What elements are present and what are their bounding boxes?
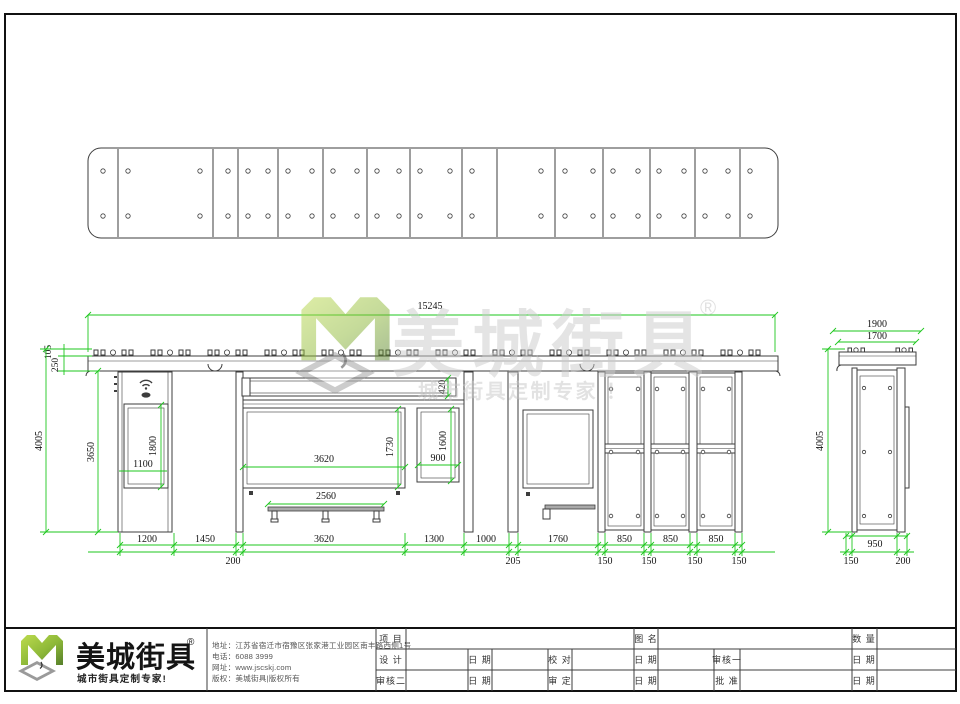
- screw-icon: [310, 214, 314, 218]
- hinge-mark: [114, 390, 117, 392]
- roof-drip-left: [86, 371, 90, 376]
- screw-icon: [636, 450, 640, 454]
- roof-clamp-bolt: [167, 350, 172, 355]
- roof-clamp: [243, 350, 247, 355]
- screw-icon: [198, 214, 202, 218]
- dim-roof-trim: 105: [44, 345, 54, 360]
- drawing-sheet: 15245 105 250 4005 3650 1800 1100 420 36…: [0, 0, 960, 704]
- info-board: [243, 408, 405, 488]
- screw-icon: [655, 450, 659, 454]
- dim-total-height: 4005: [34, 431, 45, 451]
- field-date: 日 期: [634, 676, 658, 686]
- screw-icon: [682, 169, 686, 173]
- watermark-brand: 美城街具: [392, 306, 712, 386]
- dim-right-screen-h: 1600: [438, 431, 449, 451]
- roof-clamp: [158, 350, 162, 355]
- roof-clamp: [151, 350, 155, 355]
- roof-clamp: [129, 350, 133, 355]
- company-phone: 电话：6088 3999: [212, 651, 273, 661]
- screw-icon: [126, 169, 130, 173]
- roof-clamp: [186, 350, 190, 355]
- screw-icon: [101, 169, 105, 173]
- screw-icon: [470, 169, 474, 173]
- plan-view: [88, 148, 778, 238]
- socket-mark: [249, 491, 253, 495]
- dim-bay: 1000: [476, 534, 496, 545]
- footer-logo-block: 美城街具 ® 城市街具定制专家!: [18, 635, 196, 685]
- screw-icon: [681, 387, 685, 391]
- screw-icon: [862, 514, 865, 517]
- dim-post: 150: [642, 556, 657, 567]
- screw-icon: [448, 169, 452, 173]
- screw-icon: [862, 386, 865, 389]
- company-reg: ®: [187, 637, 195, 648]
- screw-icon: [226, 169, 230, 173]
- dim-bay: 3620: [314, 534, 334, 545]
- field-date: 日 期: [852, 676, 876, 686]
- field-date: 日 期: [468, 655, 492, 665]
- hinge-mark: [114, 383, 117, 385]
- roof-clamp: [350, 350, 354, 355]
- roof-clamp: [265, 350, 269, 355]
- bench-foot: [271, 519, 278, 522]
- field-drawing-name: 图 名: [634, 633, 658, 644]
- screw-icon: [397, 214, 401, 218]
- roof-clamp: [721, 350, 725, 355]
- company-tagline: 城市街具定制专家!: [77, 673, 167, 685]
- screw-icon: [701, 450, 705, 454]
- screw-icon: [246, 169, 250, 173]
- screw-icon: [266, 169, 270, 173]
- screw-icon: [397, 169, 401, 173]
- dim-post: 205: [506, 556, 521, 567]
- screw-icon: [375, 169, 379, 173]
- screw-icon: [266, 214, 270, 218]
- screw-icon: [682, 214, 686, 218]
- screw-icon: [726, 214, 730, 218]
- screw-icon: [101, 214, 105, 218]
- screw-icon: [701, 387, 705, 391]
- socket-mark: [396, 491, 400, 495]
- screw-icon: [681, 450, 685, 454]
- roof-clamp: [756, 350, 760, 355]
- side-handle: [905, 407, 909, 488]
- field-design: 设 计: [379, 654, 403, 665]
- screw-icon: [609, 450, 613, 454]
- dim-side-off-l: 150: [844, 556, 859, 567]
- screw-icon: [888, 450, 891, 453]
- screw-icon: [655, 387, 659, 391]
- field-approve: 审 定: [548, 675, 572, 686]
- roof-clamp: [272, 350, 276, 355]
- roof-clamp: [122, 350, 126, 355]
- bench-foot: [373, 519, 380, 522]
- screw-icon: [657, 214, 661, 218]
- dim-bay: 850: [663, 534, 678, 545]
- field-date: 日 期: [634, 655, 658, 665]
- screw-icon: [355, 169, 359, 173]
- field-ratify: 批 准: [715, 675, 739, 686]
- roof-clamp: [101, 350, 105, 355]
- post: [689, 372, 697, 532]
- dim-side-h: 4005: [815, 431, 826, 451]
- roof-clamp: [848, 348, 852, 352]
- dim-bay: 1450: [195, 534, 215, 545]
- side-post: [852, 368, 857, 532]
- company-copyright: 版权：美城街具|版权所有: [212, 673, 300, 683]
- screw-icon: [563, 169, 567, 173]
- screw-icon: [611, 214, 615, 218]
- screw-icon: [286, 169, 290, 173]
- roof-clamp: [208, 350, 212, 355]
- field-review2: 审核二: [376, 675, 406, 686]
- watermark-tagline: 城市街具定制专家 ！: [418, 379, 629, 403]
- roof-clamp-bolt: [737, 350, 742, 355]
- roof-clamp: [322, 350, 326, 355]
- screw-icon: [727, 450, 731, 454]
- roof-clamp: [896, 348, 900, 352]
- dim-post: 150: [732, 556, 747, 567]
- company-website: 网址：www.jscskj.com: [212, 662, 291, 672]
- service-rail: [545, 505, 595, 509]
- screw-icon: [862, 450, 865, 453]
- dim-post: 150: [688, 556, 703, 567]
- field-proofread: 校 对: [548, 654, 572, 665]
- screw-icon: [888, 386, 891, 389]
- dim-side-canopy-w: 1700: [867, 331, 887, 342]
- screw-icon: [888, 514, 891, 517]
- dim-bay: 850: [709, 534, 724, 545]
- screw-icon: [355, 214, 359, 218]
- roof-clamp: [728, 350, 732, 355]
- roof-clamp: [94, 350, 98, 355]
- side-drip: [837, 365, 841, 371]
- side-roof: [839, 352, 916, 365]
- side-post: [897, 368, 905, 532]
- screw-icon: [226, 214, 230, 218]
- roof-clamp-bolt: [281, 350, 286, 355]
- screw-icon: [418, 169, 422, 173]
- field-date: 日 期: [468, 676, 492, 686]
- screw-icon: [636, 169, 640, 173]
- dim-bay: 850: [617, 534, 632, 545]
- socket-mark: [526, 492, 530, 496]
- roof-clamp: [236, 350, 240, 355]
- dim-fascia: 250: [51, 358, 61, 373]
- screw-icon: [331, 169, 335, 173]
- field-review1: 审核一: [712, 654, 742, 665]
- screw-icon: [418, 214, 422, 218]
- dim-body-height: 3650: [86, 442, 97, 462]
- screw-icon: [591, 214, 595, 218]
- screw-icon: [310, 169, 314, 173]
- roof-clamp: [179, 350, 183, 355]
- screw-icon: [591, 169, 595, 173]
- lightbox-cap: [242, 378, 250, 396]
- screw-icon: [286, 214, 290, 218]
- dim-side-off-r: 200: [896, 556, 911, 567]
- screw-icon: [636, 387, 640, 391]
- screw-icon: [539, 169, 543, 173]
- screw-icon: [657, 169, 661, 173]
- screw-icon: [703, 169, 707, 173]
- roof-clamp: [861, 348, 865, 352]
- screw-icon: [748, 214, 752, 218]
- post: [735, 372, 742, 532]
- roof-clamp: [357, 350, 361, 355]
- side-panel: [857, 370, 897, 530]
- dim-bay: 1760: [548, 534, 568, 545]
- screw-icon: [539, 214, 543, 218]
- screw-icon: [470, 214, 474, 218]
- roof-clamp: [215, 350, 219, 355]
- screw-icon: [748, 169, 752, 173]
- screw-icon: [126, 214, 130, 218]
- dim-bench-w: 2560: [316, 491, 336, 502]
- screw-icon: [636, 514, 640, 518]
- screw-icon: [448, 214, 452, 218]
- dim-bay: 1300: [424, 534, 444, 545]
- watermark-reg: ®: [700, 295, 716, 320]
- screw-icon: [726, 169, 730, 173]
- roof-clamp-bolt: [110, 350, 115, 355]
- screw-icon: [727, 387, 731, 391]
- screw-icon: [655, 514, 659, 518]
- screw-icon: [198, 169, 202, 173]
- roof-plan-outline: [88, 148, 778, 238]
- company-address: 地址：江苏省宿迁市宿豫区张家港工业园区南丰路西侧1号: [212, 640, 411, 650]
- speaker-icon: [142, 392, 151, 397]
- screw-icon: [609, 514, 613, 518]
- screw-icon: [681, 514, 685, 518]
- side-elevation: 1900 1700 4005 950 150 200: [815, 319, 924, 567]
- dim-side-roof-w: 1900: [867, 319, 887, 330]
- field-quantity: 数 量: [852, 633, 876, 644]
- dim-post: 150: [598, 556, 613, 567]
- screw-icon: [727, 514, 731, 518]
- dim-side-base: 950: [868, 539, 883, 550]
- dim-left-screen-h: 1800: [148, 436, 159, 456]
- company-brand: 美城街具: [76, 640, 196, 674]
- bench-seat: [268, 507, 384, 511]
- service-panel: [523, 410, 593, 488]
- screw-icon: [375, 214, 379, 218]
- roof-drip-right: [776, 371, 780, 376]
- screw-icon: [701, 514, 705, 518]
- screw-icon: [331, 214, 335, 218]
- dim-board-w: 3620: [314, 454, 334, 465]
- dim-bay: 1200: [137, 534, 157, 545]
- service-bin: [543, 509, 550, 519]
- dim-board-h: 1730: [385, 437, 396, 457]
- roof-clamp-bolt: [224, 350, 229, 355]
- field-date: 日 期: [852, 655, 876, 665]
- dim-right-screen-w: 900: [431, 453, 446, 464]
- company-logo: [18, 635, 63, 681]
- hinge-mark: [114, 376, 117, 378]
- roof-clamp: [909, 348, 913, 352]
- post: [644, 372, 651, 532]
- cad-canvas: 15245 105 250 4005 3650 1800 1100 420 36…: [0, 0, 960, 704]
- roof-clamp: [293, 350, 297, 355]
- bench-foot: [322, 519, 329, 522]
- screw-icon: [636, 214, 640, 218]
- screw-icon: [246, 214, 250, 218]
- roof-clamp: [749, 350, 753, 355]
- screw-icon: [563, 214, 567, 218]
- dim-left-screen-w: 1100: [133, 459, 153, 470]
- screw-icon: [611, 169, 615, 173]
- dim-post: 200: [226, 556, 241, 567]
- screw-icon: [703, 214, 707, 218]
